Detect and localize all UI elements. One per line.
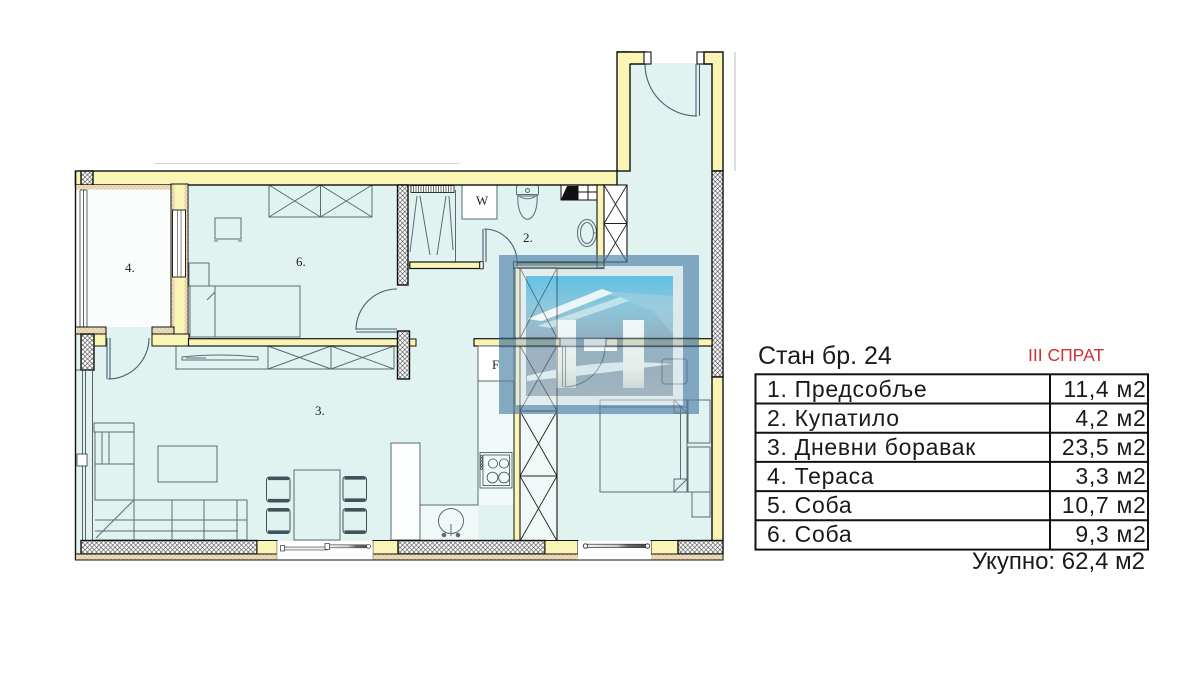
svg-text:3,3 м2: 3,3 м2 [1075, 463, 1146, 489]
svg-text:10,7 м2: 10,7 м2 [1062, 492, 1147, 518]
svg-text:5. Соба: 5. Соба [767, 492, 852, 518]
svg-text:4,2 м2: 4,2 м2 [1075, 405, 1146, 431]
svg-text:23,5 м2: 23,5 м2 [1062, 434, 1147, 460]
svg-text:W: W [476, 193, 489, 208]
svg-text:2.: 2. [523, 230, 533, 245]
svg-text:6.: 6. [296, 254, 306, 269]
svg-text:Укупно: 62,4 м2: Укупно: 62,4 м2 [972, 548, 1145, 575]
svg-text:6. Соба: 6. Соба [767, 521, 852, 547]
svg-text:2. Купатило: 2. Купатило [767, 405, 900, 431]
svg-text:4.: 4. [125, 260, 135, 275]
svg-text:3. Дневни боравак: 3. Дневни боравак [767, 434, 976, 460]
svg-text:3.: 3. [315, 403, 325, 418]
svg-text:III СПРАТ: III СПРАТ [1028, 345, 1104, 365]
svg-text:F: F [492, 357, 499, 372]
svg-text:1. Предсобље: 1. Предсобље [767, 376, 927, 402]
svg-text:11,4 м2: 11,4 м2 [1064, 376, 1147, 402]
svg-text:9,3 м2: 9,3 м2 [1075, 521, 1146, 547]
svg-text:Стан бр. 24: Стан бр. 24 [758, 342, 892, 370]
svg-text:4. Тераса: 4. Тераса [767, 463, 874, 489]
